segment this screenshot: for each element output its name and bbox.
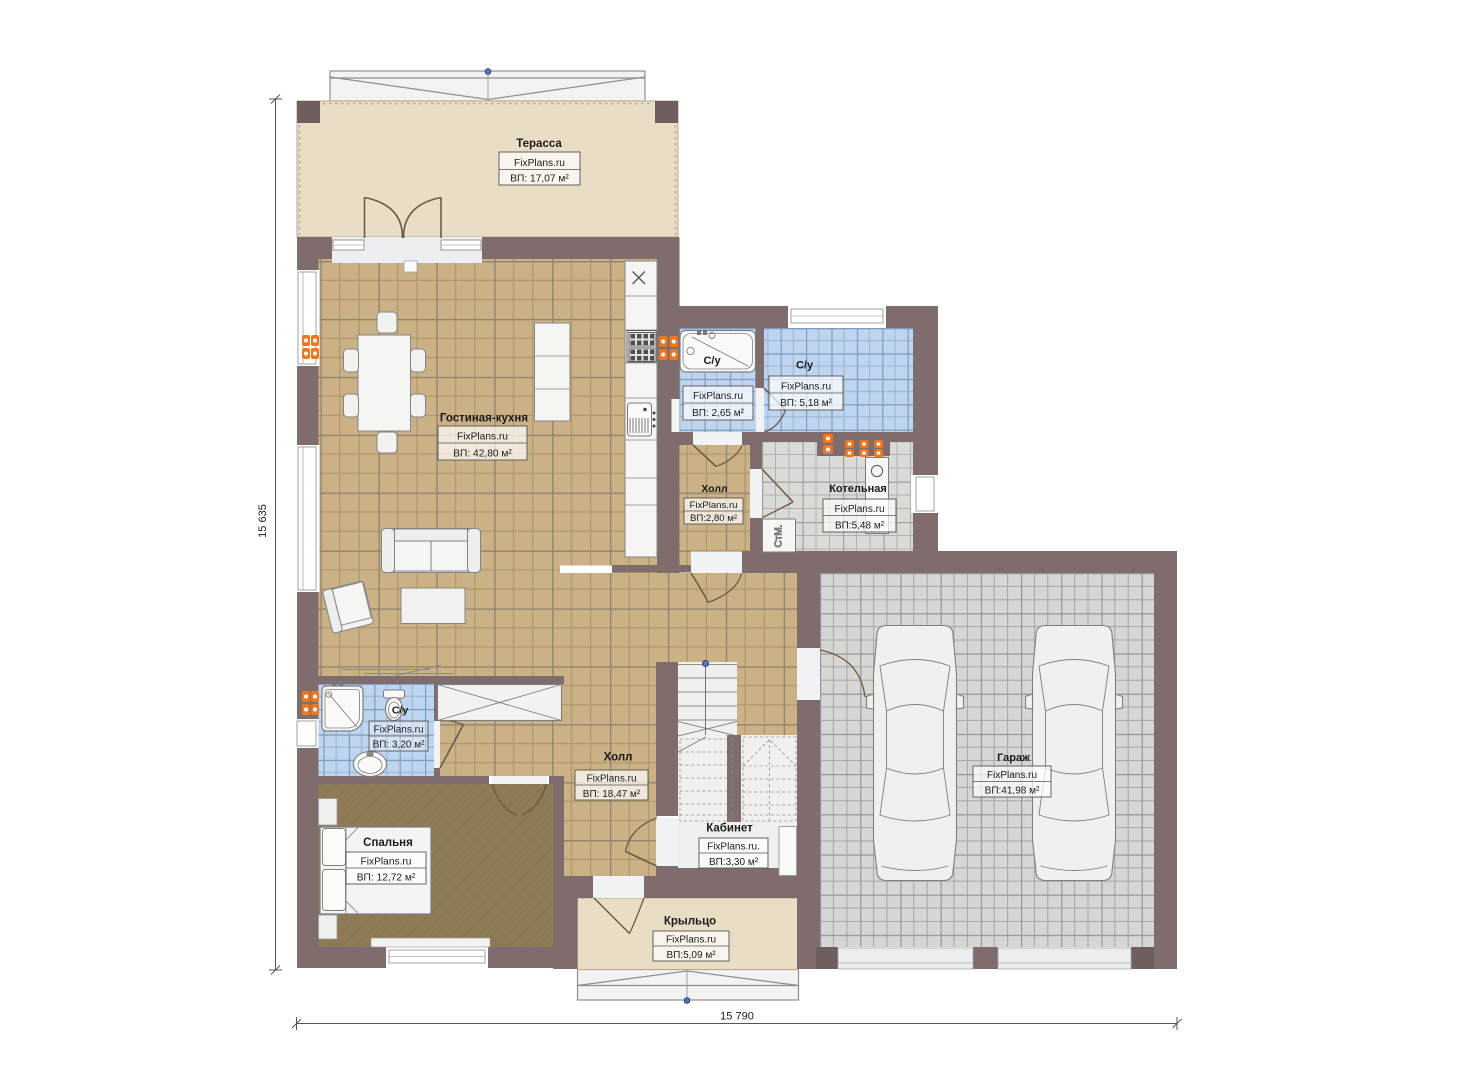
svg-text:Спальня: Спальня xyxy=(363,837,413,849)
svg-text:FixPlans.ru: FixPlans.ru xyxy=(666,935,716,946)
svg-text:FixPlans.ru: FixPlans.ru xyxy=(834,504,884,515)
svg-text:Терасса: Терасса xyxy=(516,138,562,150)
svg-text:С/у: С/у xyxy=(392,705,409,717)
svg-text:FixPlans.ru: FixPlans.ru xyxy=(457,432,508,443)
svg-text:FixPlans.ru: FixPlans.ru xyxy=(987,770,1037,781)
svg-text:Гостиная-кухня: Гостиная-кухня xyxy=(440,413,528,425)
svg-text:Крыльцо: Крыльцо xyxy=(664,916,716,928)
svg-text:Котельная: Котельная xyxy=(829,483,887,495)
svg-text:Холл: Холл xyxy=(701,483,727,495)
svg-text:FixPlans.ru: FixPlans.ru xyxy=(693,391,743,402)
svg-text:С/у: С/у xyxy=(703,355,721,367)
svg-text:Кабинет: Кабинет xyxy=(706,823,753,835)
svg-text:FixPlans.ru: FixPlans.ru xyxy=(373,725,423,736)
svg-text:FixPlans.ru: FixPlans.ru xyxy=(781,382,831,393)
svg-text:ВП: 42,80 м²: ВП: 42,80 м² xyxy=(453,449,512,460)
svg-text:СтМ.: СтМ. xyxy=(774,525,785,548)
svg-text:ВП: 2,65 м²: ВП: 2,65 м² xyxy=(692,408,745,419)
svg-text:ВП:41,98 м²: ВП:41,98 м² xyxy=(985,786,1040,797)
svg-text:С/у: С/у xyxy=(796,360,814,372)
svg-text:Гараж: Гараж xyxy=(997,752,1030,764)
svg-text:ВП: 12,72 м²: ВП: 12,72 м² xyxy=(357,873,416,884)
svg-text:ВП:5,09 м²: ВП:5,09 м² xyxy=(666,950,716,961)
svg-text:ВП:5,48 м²: ВП:5,48 м² xyxy=(835,521,885,532)
svg-text:FixPlans.ru.: FixPlans.ru. xyxy=(707,842,760,853)
svg-text:ВП: 5,18 м²: ВП: 5,18 м² xyxy=(780,398,833,409)
svg-text:ВП: 18,47 м²: ВП: 18,47 м² xyxy=(583,789,641,800)
svg-text:ВП:3,30 м²: ВП:3,30 м² xyxy=(709,857,759,868)
svg-text:ВП: 17,07 м²: ВП: 17,07 м² xyxy=(510,174,569,185)
svg-text:FixPlans.ru: FixPlans.ru xyxy=(361,857,412,868)
svg-text:ВП: 3,20 м²: ВП: 3,20 м² xyxy=(373,740,426,751)
svg-text:ВП:2,80 м²: ВП:2,80 м² xyxy=(690,513,738,524)
svg-text:Холл: Холл xyxy=(604,752,633,764)
svg-text:15 635: 15 635 xyxy=(257,504,269,538)
svg-text:FixPlans.ru: FixPlans.ru xyxy=(586,774,636,785)
svg-text:FixPlans.ru: FixPlans.ru xyxy=(514,158,565,169)
svg-text:FixPlans.ru: FixPlans.ru xyxy=(690,500,738,511)
svg-text:15 790: 15 790 xyxy=(720,1011,754,1023)
